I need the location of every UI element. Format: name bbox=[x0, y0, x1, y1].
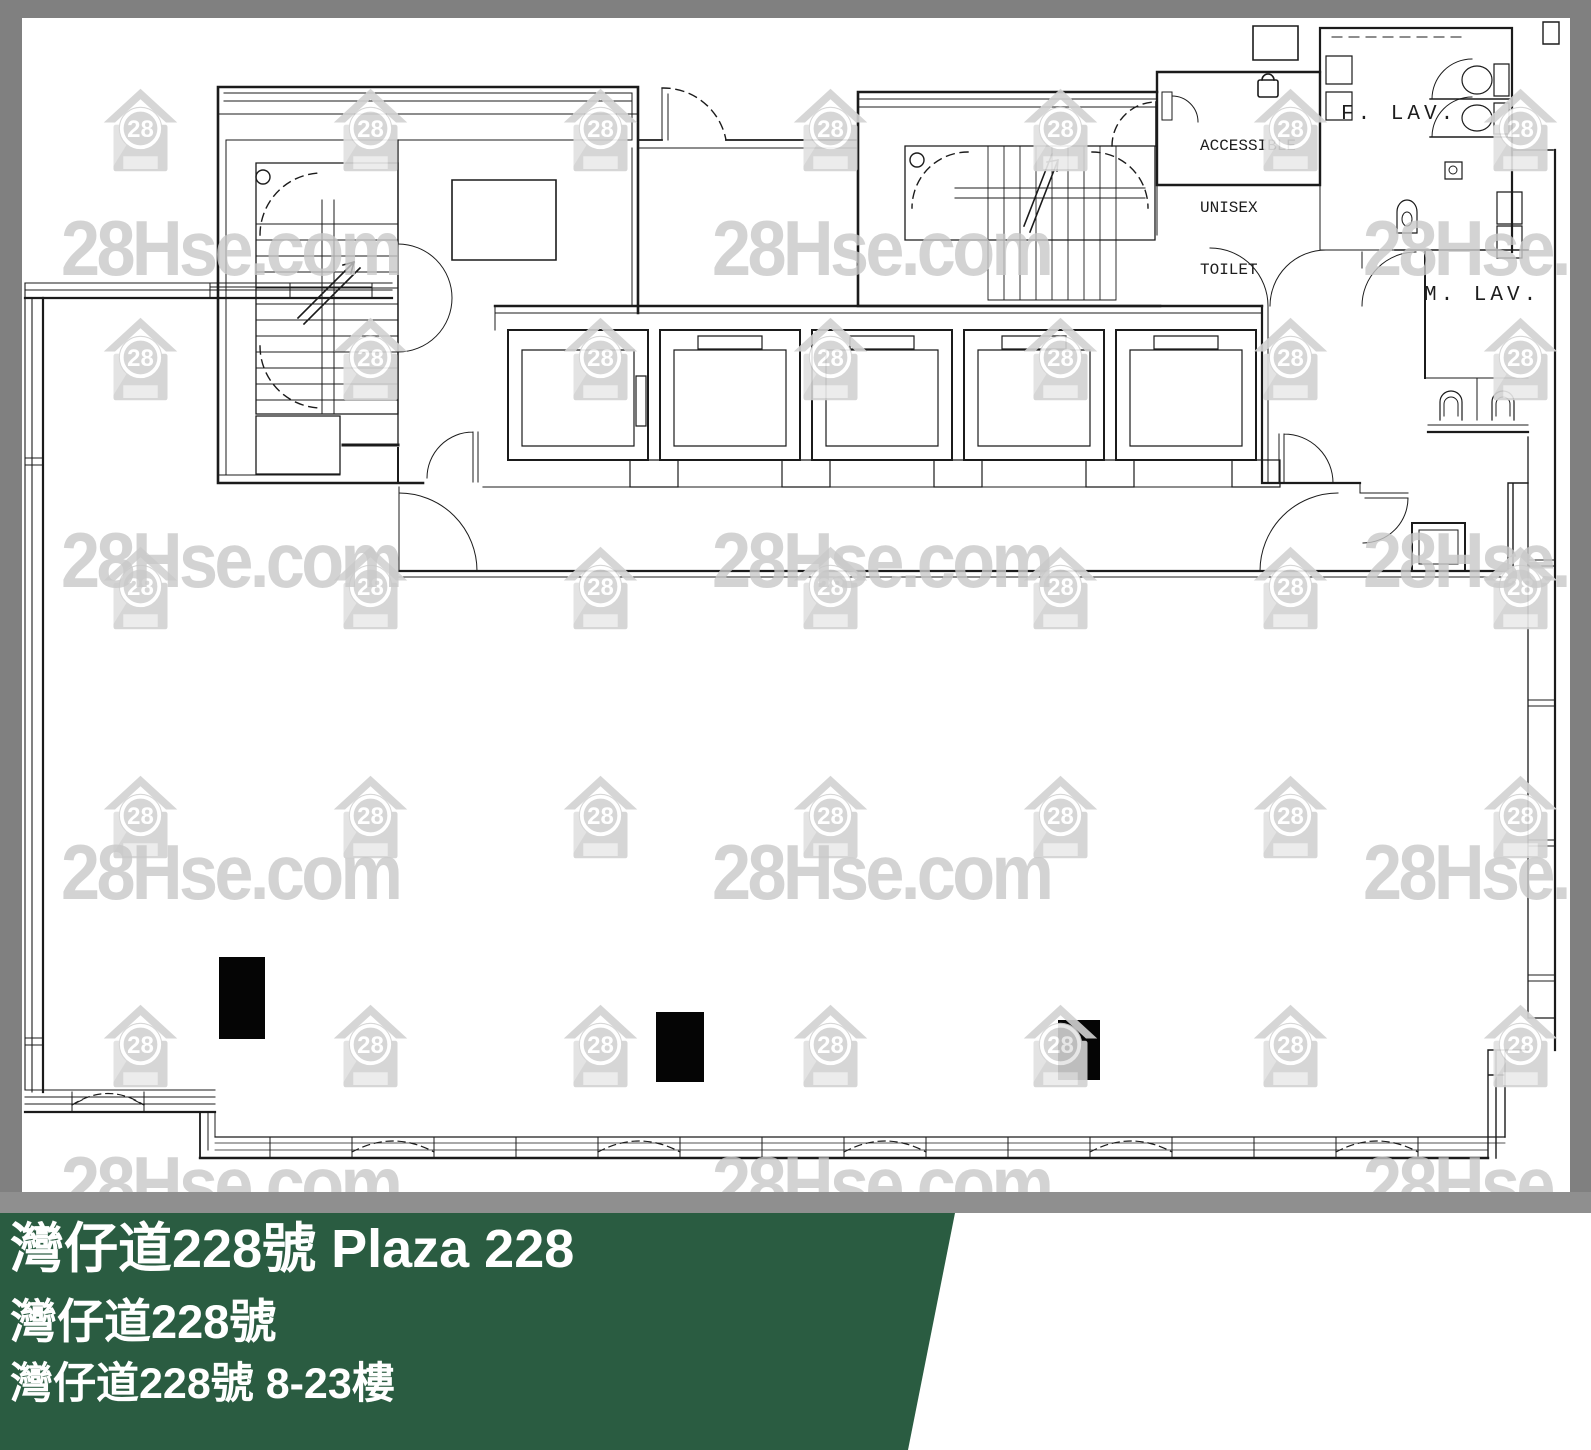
building-title: 灣仔道228號 Plaza 228 bbox=[10, 1222, 574, 1276]
accessible-label-line3: TOILET bbox=[1200, 260, 1296, 281]
frame-right-border bbox=[1570, 0, 1591, 1192]
accessible-label-line1: ACCESSIBLE bbox=[1200, 136, 1296, 157]
accessible-unisex-toilet-label: ACCESSIBLE UNISEX TOILET bbox=[1200, 94, 1296, 323]
structural-column bbox=[219, 957, 265, 1039]
building-floor-range: 灣仔道228號 8-23樓 bbox=[10, 1363, 395, 1406]
male-lavatory-label: M. LAV. bbox=[1424, 282, 1540, 309]
banner: 灣仔道228號 Plaza 228 灣仔道228號 灣仔道228號 8-23樓 … bbox=[0, 1213, 1591, 1450]
accessible-label-line2: UNISEX bbox=[1200, 198, 1296, 219]
banner-green-background: 灣仔道228號 Plaza 228 灣仔道228號 灣仔道228號 8-23樓 bbox=[0, 1213, 960, 1450]
frame-left-border bbox=[0, 0, 22, 1192]
structural-column bbox=[656, 1012, 704, 1082]
female-lavatory-label: F. LAV. bbox=[1341, 101, 1457, 128]
structural-column bbox=[1058, 1020, 1100, 1080]
frame-top-border bbox=[0, 0, 1591, 18]
frame-bottom-border bbox=[0, 1192, 1591, 1213]
building-subtitle: 灣仔道228號 bbox=[10, 1298, 276, 1345]
floorplan-page: ACCESSIBLE UNISEX TOILET F. LAV. M. LAV.… bbox=[0, 0, 1591, 1450]
